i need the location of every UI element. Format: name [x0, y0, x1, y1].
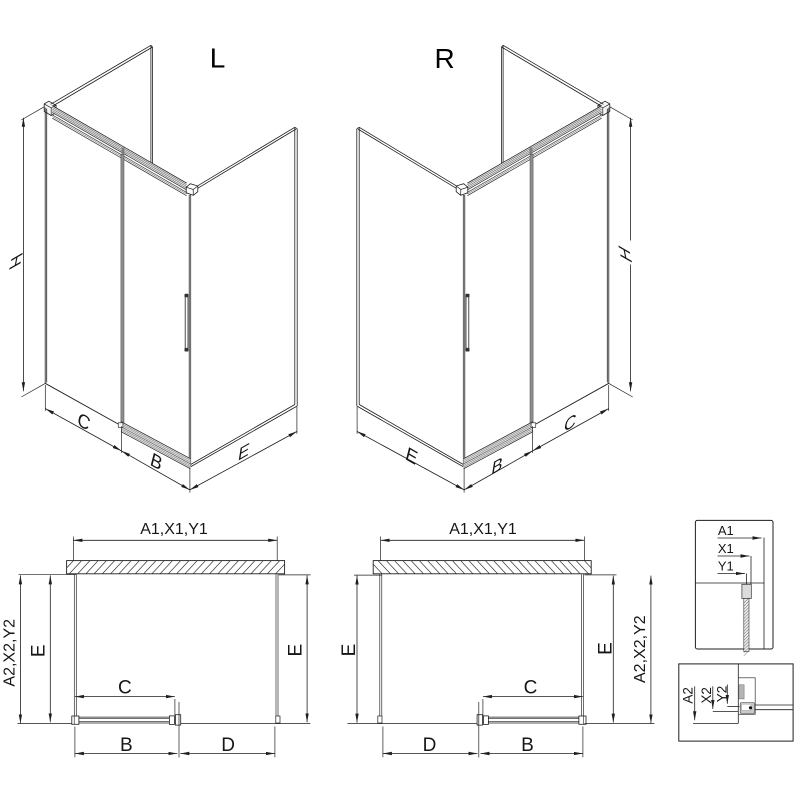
svg-text:C: C: [524, 677, 538, 698]
svg-text:A2,X2,Y2: A2,X2,Y2: [632, 615, 649, 683]
svg-text:X2: X2: [699, 687, 714, 704]
svg-text:E: E: [286, 644, 307, 657]
svg-text:B: B: [120, 735, 133, 756]
svg-text:D: D: [221, 735, 235, 756]
svg-text:A1,X1,Y1: A1,X1,Y1: [449, 521, 517, 538]
svg-text:C: C: [118, 677, 132, 698]
svg-text:E: E: [339, 644, 360, 657]
svg-text:A1: A1: [718, 523, 734, 538]
svg-text:Y2: Y2: [714, 686, 729, 703]
svg-text:D: D: [423, 735, 437, 756]
svg-text:A1,X1,Y1: A1,X1,Y1: [140, 521, 208, 538]
svg-text:E: E: [595, 642, 616, 655]
svg-text:R: R: [434, 43, 454, 74]
svg-text:B: B: [521, 735, 534, 756]
svg-text:A2: A2: [680, 687, 695, 704]
svg-text:Y1: Y1: [718, 559, 734, 574]
svg-text:X1: X1: [718, 541, 734, 556]
svg-text:A2,X2,Y2: A2,X2,Y2: [2, 619, 19, 687]
svg-text:L: L: [210, 43, 226, 74]
svg-text:E: E: [28, 644, 49, 657]
